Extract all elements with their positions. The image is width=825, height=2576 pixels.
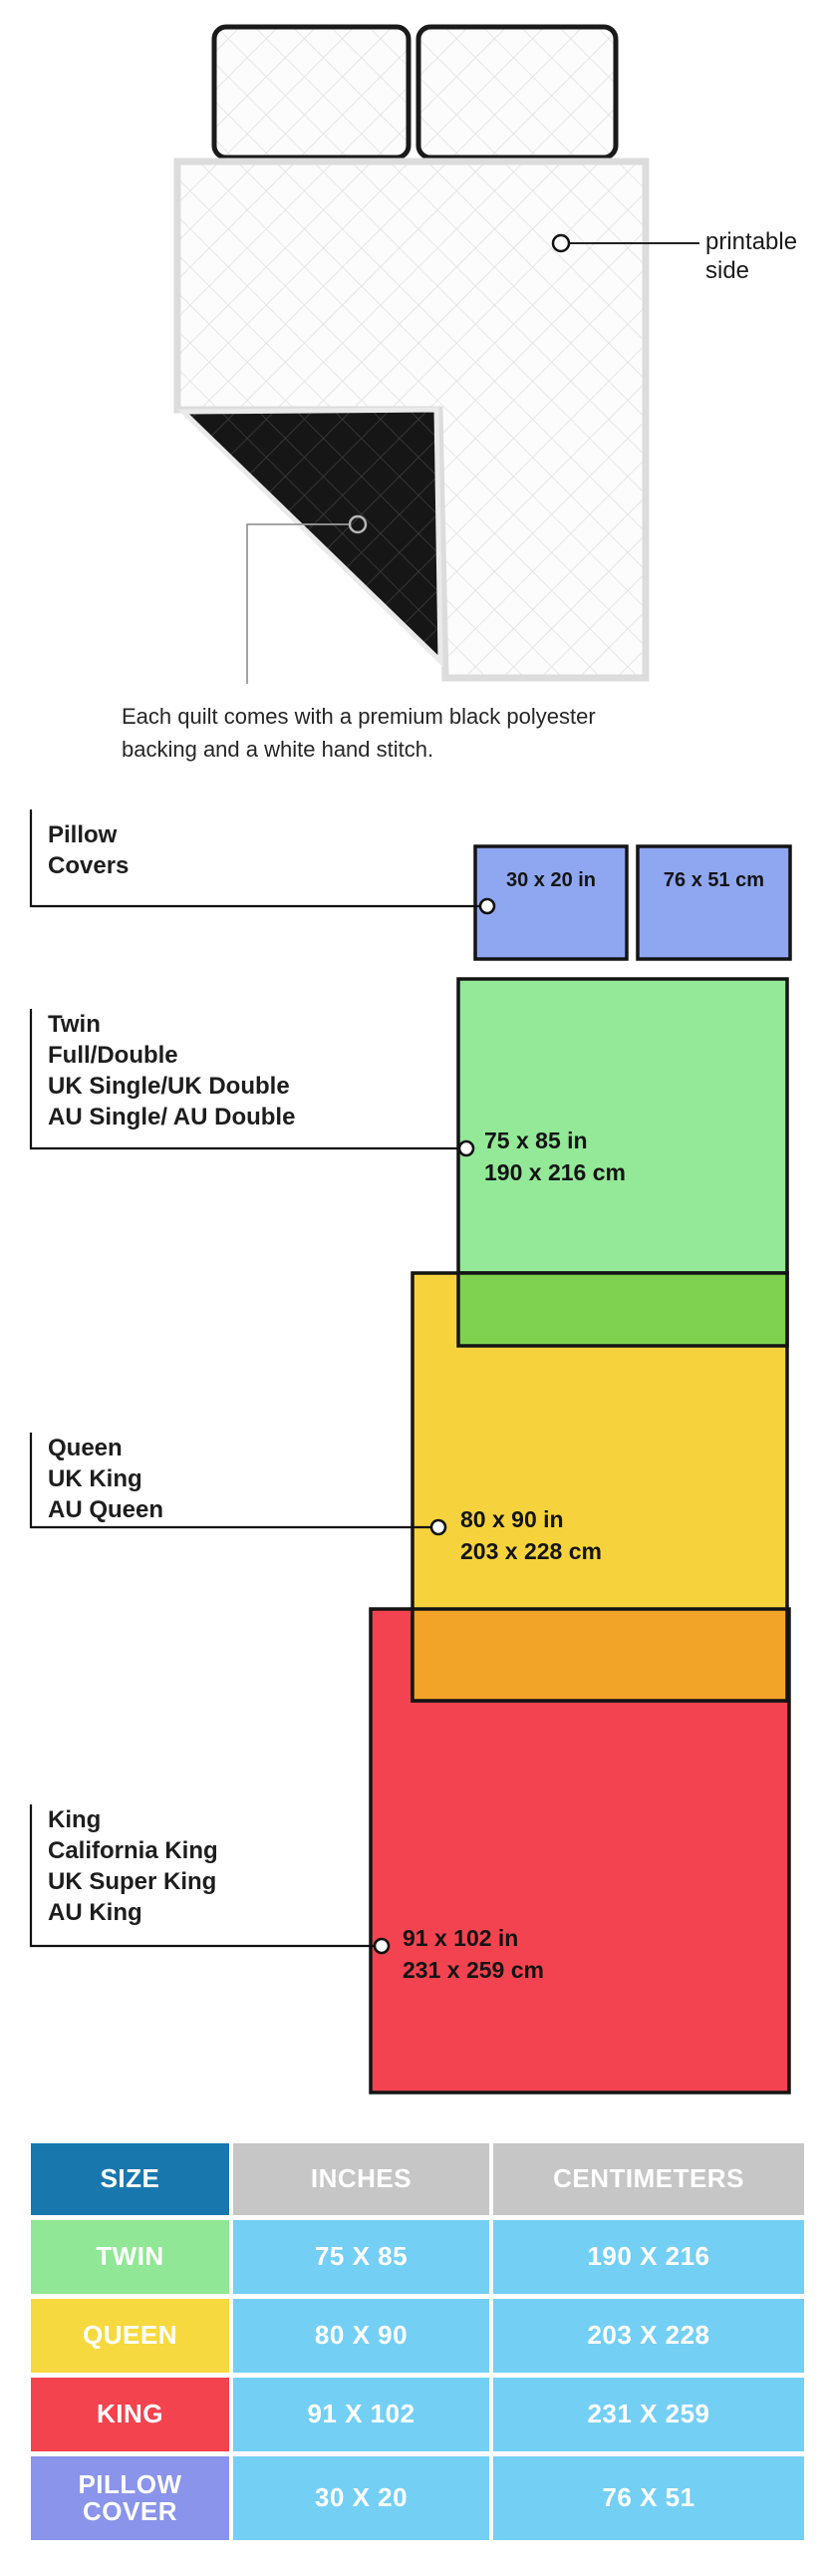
queen-labels: Queen UK King AU Queen xyxy=(48,1433,163,1525)
quilt-caption-line2: backing and a white hand stitch. xyxy=(122,733,596,766)
queen-label-line: UK King xyxy=(48,1463,163,1494)
queen-label-line: AU Queen xyxy=(48,1494,163,1525)
pillow-covers-marker xyxy=(480,899,494,913)
pillow-cover-inch-size: 30 x 20 in xyxy=(475,869,627,892)
twin-size-inches: 75 x 85 in xyxy=(484,1125,626,1156)
queen-size-cm: 203 x 228 cm xyxy=(460,1535,602,1567)
table-header-inches: INCHES xyxy=(233,2143,489,2215)
king-label-line: King xyxy=(48,1804,218,1835)
king-size-text: 91 x 102 in 231 x 259 cm xyxy=(403,1922,544,1986)
printable-side-label-line2: side xyxy=(705,256,797,285)
twin-size-text: 75 x 85 in 190 x 216 cm xyxy=(484,1125,626,1188)
pillow-cover-inch-rect xyxy=(475,846,627,959)
table-row-queen-inches: 80 X 90 xyxy=(233,2299,489,2373)
twin-labels: Twin Full/Double UK Single/UK Double AU … xyxy=(48,1009,295,1132)
twin-marker xyxy=(459,1141,473,1155)
quilt-size-chart-page: { "illustration": { "printable_label_lin… xyxy=(0,0,825,2576)
table-row-twin-cm: 190 X 216 xyxy=(493,2220,804,2294)
size-table: SIZE INCHES CENTIMETERS TWIN 75 X 85 190… xyxy=(31,2143,804,2540)
quilt-caption: Each quilt comes with a premium black po… xyxy=(122,700,596,766)
table-header-size: SIZE xyxy=(31,2143,229,2215)
twin-size-cm: 190 x 216 cm xyxy=(484,1156,626,1188)
printable-side-marker xyxy=(553,235,569,251)
table-row-king-cm: 231 X 259 xyxy=(493,2378,804,2451)
table-row-twin-size: TWIN xyxy=(31,2220,229,2294)
twin-label-line: UK Single/UK Double xyxy=(48,1071,295,1102)
pillow-left xyxy=(214,27,409,158)
table-row-queen-size: QUEEN xyxy=(31,2299,229,2373)
king-labels: King California King UK Super King AU Ki… xyxy=(48,1804,218,1928)
table-row-pillow-cover-size: PILLOW COVER xyxy=(31,2456,229,2540)
quilt-black-backing-fold xyxy=(183,410,440,661)
pillow-cover-cm-size: 76 x 51 cm xyxy=(638,869,790,892)
pillow-covers-label: Pillow Covers xyxy=(48,819,129,881)
king-label-line: AU King xyxy=(48,1897,218,1928)
queen-king-overlap-rect xyxy=(412,1609,787,1701)
pillow-cover-cm-rect xyxy=(638,846,790,959)
queen-marker xyxy=(431,1520,445,1534)
king-size-inches: 91 x 102 in xyxy=(403,1922,544,1954)
printable-side-label-line1: printable xyxy=(705,227,797,256)
king-marker xyxy=(375,1939,389,1953)
queen-size-inches: 80 x 90 in xyxy=(460,1503,602,1535)
twin-label-line: Twin xyxy=(48,1009,295,1040)
table-row-queen-cm: 203 X 228 xyxy=(493,2299,804,2373)
king-size-cm: 231 x 259 cm xyxy=(403,1954,544,1986)
table-row-king-inches: 91 X 102 xyxy=(233,2378,489,2451)
table-row-twin-inches: 75 X 85 xyxy=(233,2220,489,2294)
king-label-line: California King xyxy=(48,1835,218,1866)
pillow-right xyxy=(418,27,616,158)
table-row-pillow-cover-inches: 30 X 20 xyxy=(233,2456,489,2540)
twin-label-line: Full/Double xyxy=(48,1040,295,1071)
printable-side-label: printable side xyxy=(705,227,797,285)
table-row-king-size: KING xyxy=(31,2378,229,2451)
king-label-line: UK Super King xyxy=(48,1866,218,1897)
twin-queen-overlap-rect xyxy=(458,1273,787,1346)
twin-label-line: AU Single/ AU Double xyxy=(48,1102,295,1132)
pillow-covers-label-line2: Covers xyxy=(48,850,129,881)
table-row-pillow-cover-cm: 76 X 51 xyxy=(493,2456,804,2540)
table-header-centimeters: CENTIMETERS xyxy=(493,2143,804,2215)
queen-label-line: Queen xyxy=(48,1433,163,1463)
pillow-covers-label-line1: Pillow xyxy=(48,819,129,850)
quilt-caption-line1: Each quilt comes with a premium black po… xyxy=(122,700,596,733)
queen-size-text: 80 x 90 in 203 x 228 cm xyxy=(460,1503,602,1567)
